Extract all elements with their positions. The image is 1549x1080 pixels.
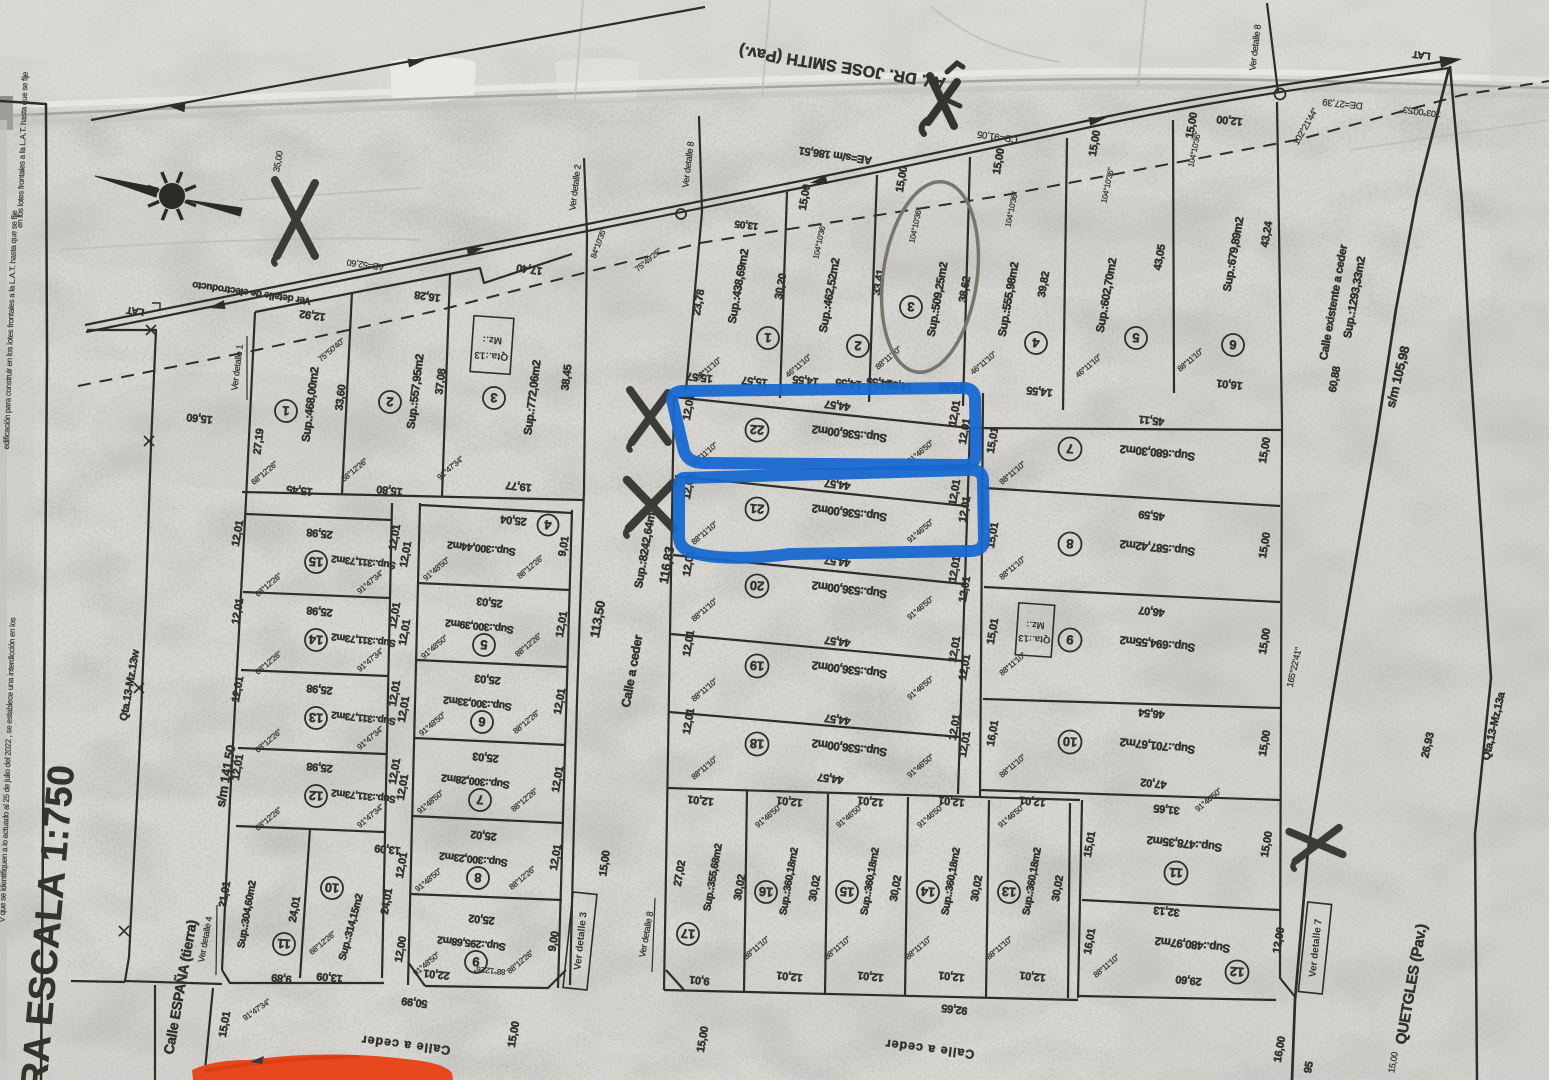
- svg-text:6: 6: [478, 714, 486, 729]
- svg-text:15: 15: [839, 884, 854, 900]
- svg-text:5: 5: [480, 637, 488, 652]
- svg-text:19: 19: [749, 658, 764, 674]
- svg-text:9,01: 9,01: [689, 973, 711, 987]
- svg-text:LAT: LAT: [1412, 48, 1431, 61]
- svg-text:3: 3: [490, 390, 498, 405]
- svg-text:17: 17: [680, 926, 695, 942]
- svg-text:12: 12: [1229, 964, 1244, 980]
- svg-text:14: 14: [308, 632, 324, 648]
- svg-text:20: 20: [749, 578, 764, 594]
- svg-text:5: 5: [1132, 330, 1140, 345]
- svg-text:1: 1: [764, 330, 772, 345]
- svg-text:13: 13: [308, 710, 323, 726]
- svg-text:16: 16: [758, 884, 773, 900]
- svg-text:95: 95: [1302, 1061, 1316, 1075]
- svg-text:7: 7: [1066, 441, 1074, 456]
- svg-text:3: 3: [907, 299, 915, 314]
- svg-text:Qta.:13: Qta.:13: [1018, 632, 1051, 645]
- svg-text:11: 11: [1169, 865, 1184, 881]
- svg-text:Mz.:: Mz.:: [482, 333, 502, 345]
- svg-text:13: 13: [1001, 884, 1016, 900]
- svg-text:Mz.:: Mz.:: [1026, 618, 1045, 630]
- svg-text:8: 8: [1066, 536, 1074, 551]
- svg-text:9: 9: [1066, 632, 1074, 647]
- svg-text:6: 6: [1229, 337, 1237, 352]
- svg-text:7: 7: [476, 792, 484, 807]
- svg-text:1: 1: [282, 403, 290, 418]
- svg-text:14: 14: [920, 884, 936, 900]
- svg-text:15: 15: [308, 554, 323, 570]
- svg-text:21: 21: [749, 501, 764, 517]
- svg-text:18: 18: [749, 736, 764, 752]
- svg-text:11: 11: [277, 936, 292, 952]
- svg-text:2: 2: [386, 394, 394, 409]
- svg-text:2: 2: [854, 338, 862, 353]
- svg-text:10: 10: [324, 880, 339, 896]
- svg-text:12: 12: [308, 788, 323, 804]
- svg-text:8: 8: [474, 870, 482, 885]
- svg-text:22: 22: [749, 422, 764, 438]
- svg-text:9,89: 9,89: [271, 971, 293, 985]
- svg-text:10: 10: [1062, 734, 1077, 750]
